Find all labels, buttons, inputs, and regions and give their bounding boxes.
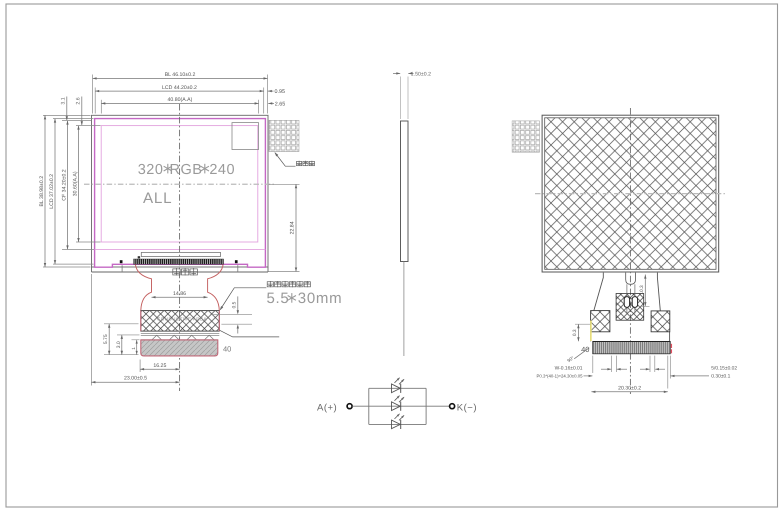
svg-text:K(−): K(−) bbox=[457, 402, 477, 413]
svg-text:23.00±0.5: 23.00±0.5 bbox=[124, 375, 147, 381]
svg-text:CONDUCTIVE AREA: CONDUCTIVE AREA bbox=[157, 317, 207, 322]
svg-text:0.95: 0.95 bbox=[275, 89, 286, 95]
svg-text:0.30±0.1: 0.30±0.1 bbox=[711, 374, 730, 380]
svg-text:20.30±0.2: 20.30±0.2 bbox=[618, 385, 641, 391]
svg-text:10.3: 10.3 bbox=[639, 285, 645, 295]
svg-text:40.80(A.A): 40.80(A.A) bbox=[168, 97, 193, 103]
svg-text:LCD 44.20±0.2: LCD 44.20±0.2 bbox=[162, 85, 197, 91]
svg-text:16.25: 16.25 bbox=[153, 363, 166, 369]
svg-text:240: 240 bbox=[209, 162, 235, 178]
svg-text:W-0.16±0.01: W-0.16±0.01 bbox=[555, 365, 583, 371]
svg-text:0.5: 0.5 bbox=[231, 301, 237, 308]
svg-text:30.60(A.A): 30.60(A.A) bbox=[72, 171, 78, 196]
svg-text:5.75: 5.75 bbox=[103, 334, 109, 344]
svg-text:22.84: 22.84 bbox=[290, 221, 296, 234]
svg-text:0.3: 0.3 bbox=[572, 329, 578, 336]
svg-text:5.5: 5.5 bbox=[267, 290, 290, 307]
svg-text:A(+): A(+) bbox=[317, 402, 337, 413]
svg-text:3.1: 3.1 bbox=[61, 97, 67, 104]
svg-text:30mm: 30mm bbox=[298, 290, 342, 307]
svg-text:BL 46.10±0.2: BL 46.10±0.2 bbox=[165, 72, 196, 78]
svg-text:LCD 37.02±0.2: LCD 37.02±0.2 bbox=[49, 174, 55, 209]
svg-text:CF 34.20±0.2: CF 34.20±0.2 bbox=[61, 169, 67, 201]
svg-text:BL 38.98±0.2: BL 38.98±0.2 bbox=[39, 176, 45, 207]
svg-text:RGB: RGB bbox=[170, 162, 203, 178]
svg-text:320: 320 bbox=[138, 162, 164, 178]
svg-text:1: 1 bbox=[131, 347, 136, 350]
svg-text:ALL: ALL bbox=[143, 190, 172, 207]
svg-text:P0.3*(40-1)=24.30±0.05: P0.3*(40-1)=24.30±0.05 bbox=[537, 374, 584, 379]
svg-text:3.0: 3.0 bbox=[116, 341, 122, 348]
svg-text:5/0.15±0.02: 5/0.15±0.02 bbox=[711, 365, 737, 371]
svg-text:40: 40 bbox=[223, 345, 231, 354]
svg-text:2.65: 2.65 bbox=[275, 102, 286, 108]
svg-text:14.86: 14.86 bbox=[173, 291, 186, 297]
svg-text:1.50±0.2: 1.50±0.2 bbox=[411, 72, 431, 78]
svg-text:2.6: 2.6 bbox=[76, 97, 82, 104]
